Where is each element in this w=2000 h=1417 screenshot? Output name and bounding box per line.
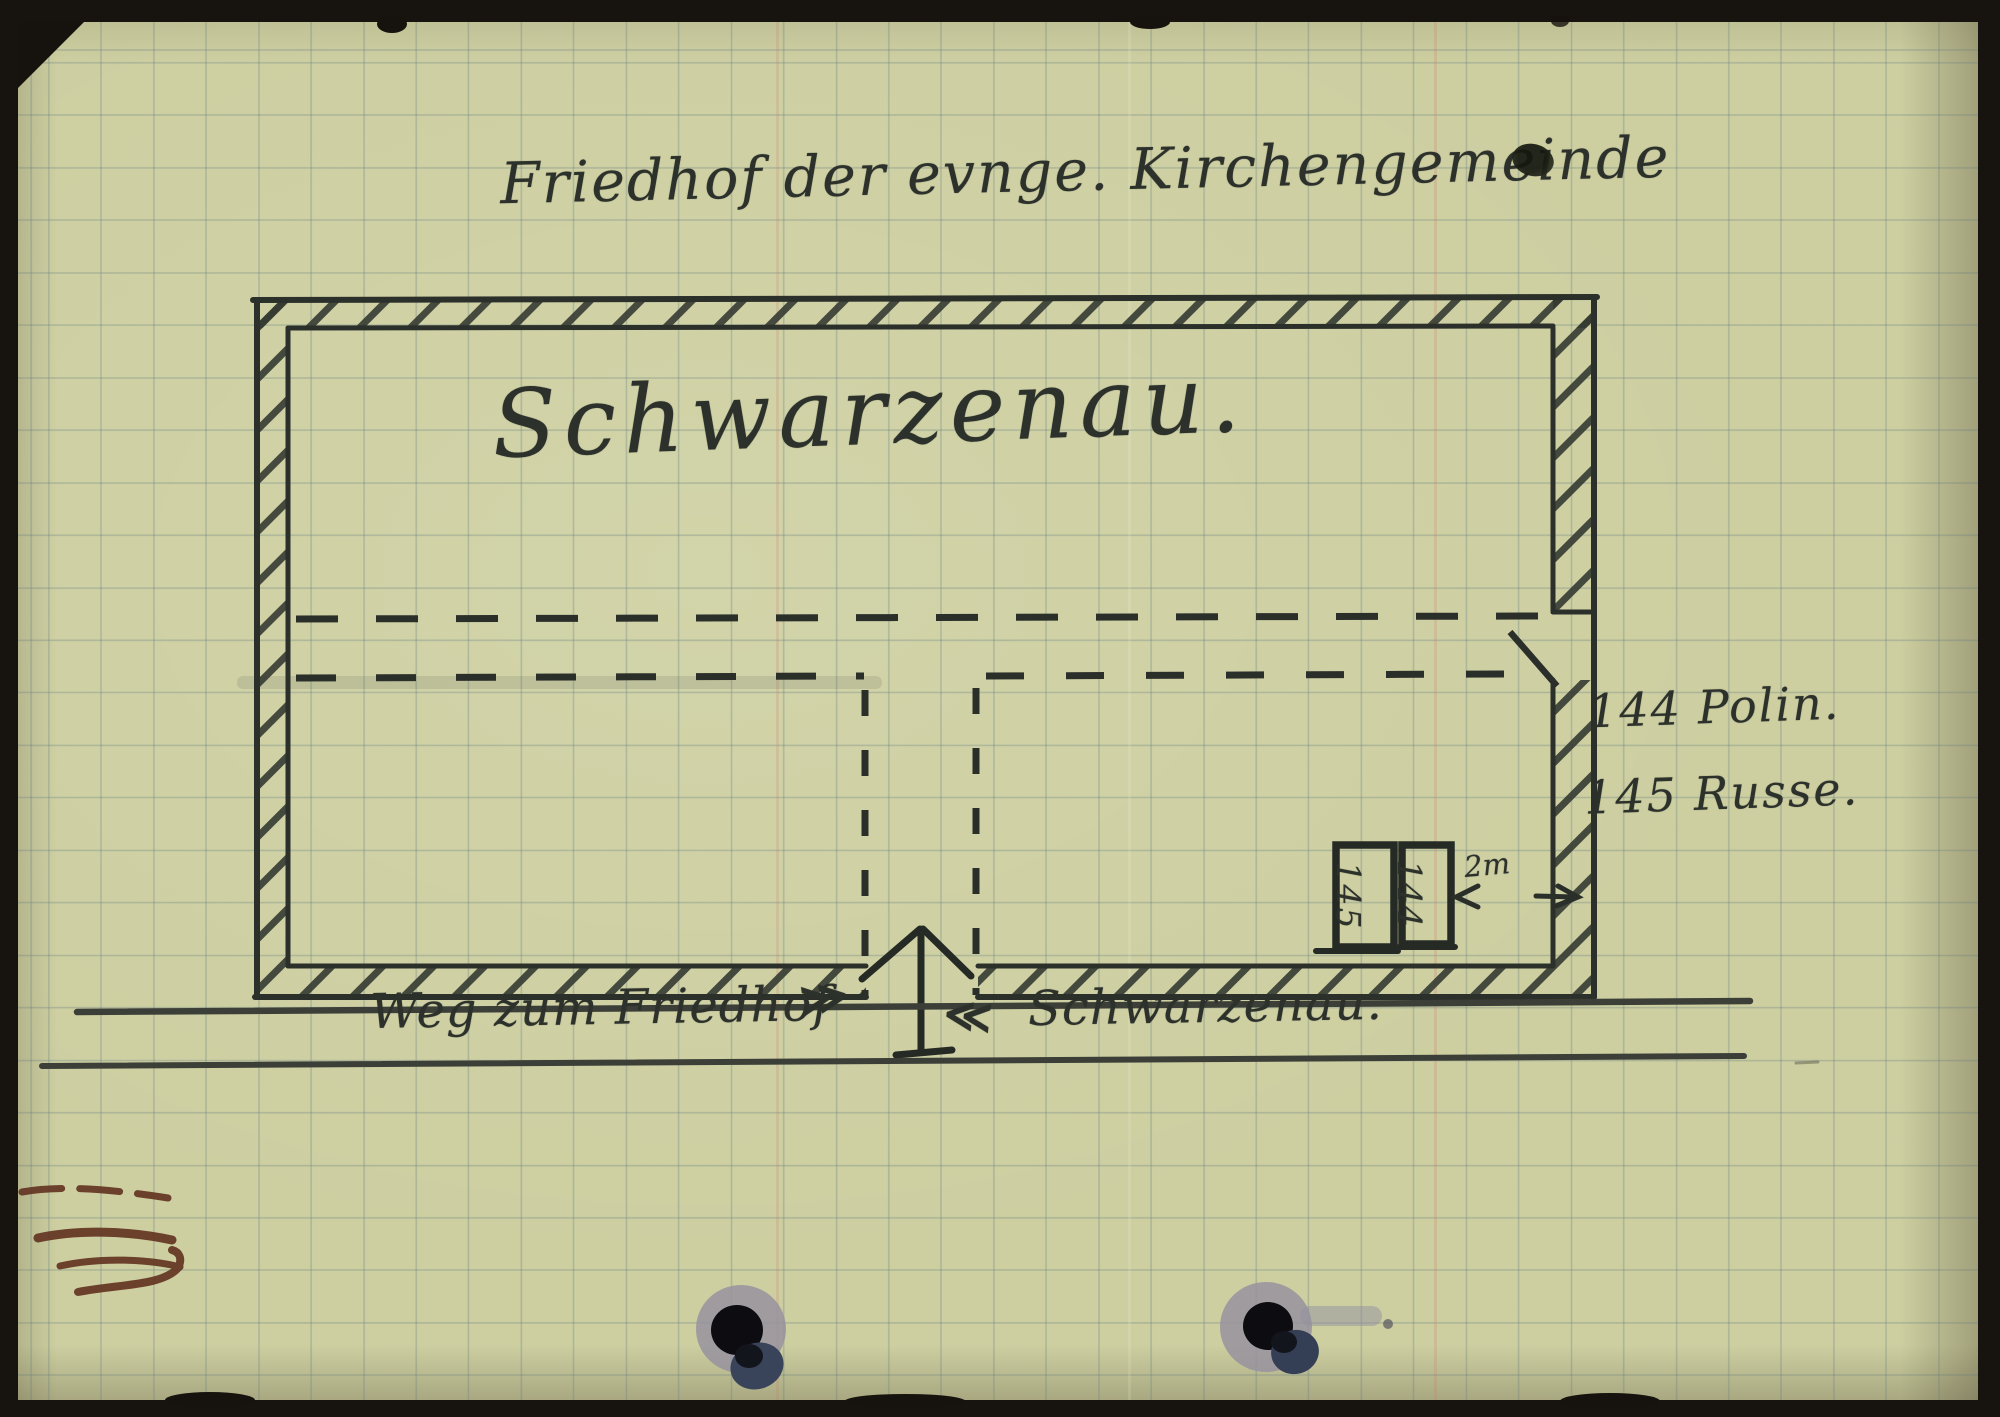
chevrons-toward-entrance-left-icon: ≪	[941, 986, 995, 1045]
legend-number: 145	[1583, 768, 1679, 825]
road-lines	[42, 1001, 1818, 1066]
dimension-label: 2m	[1463, 846, 1512, 884]
legend-number: 144	[1587, 681, 1683, 738]
section-dashed-line-upper	[296, 616, 1538, 619]
punch-hole-right	[1220, 1282, 1393, 1379]
section-dashed-line-lower	[296, 632, 1557, 686]
legend-item-144: 144Polin.	[1587, 676, 1841, 739]
legend-item-145: 145Russe.	[1583, 761, 1860, 825]
punch-hole-left	[696, 1285, 790, 1397]
road-label-left: Weg zum Friedhof	[370, 976, 832, 1040]
chevrons-toward-entrance-right-icon: ≫	[796, 967, 851, 1027]
dimension-arrows-icon	[1456, 886, 1578, 907]
scanned-document: Friedhof der evnge. Kirchengemeinde Schw…	[0, 0, 2000, 1417]
legend-label: Russe.	[1693, 761, 1860, 821]
road-label-right: Schwarzenau.	[1028, 975, 1384, 1037]
crayon-marks	[22, 1188, 180, 1292]
grave-box-144-label: 144	[1361, 870, 1458, 919]
legend-label: Polin.	[1697, 676, 1841, 735]
